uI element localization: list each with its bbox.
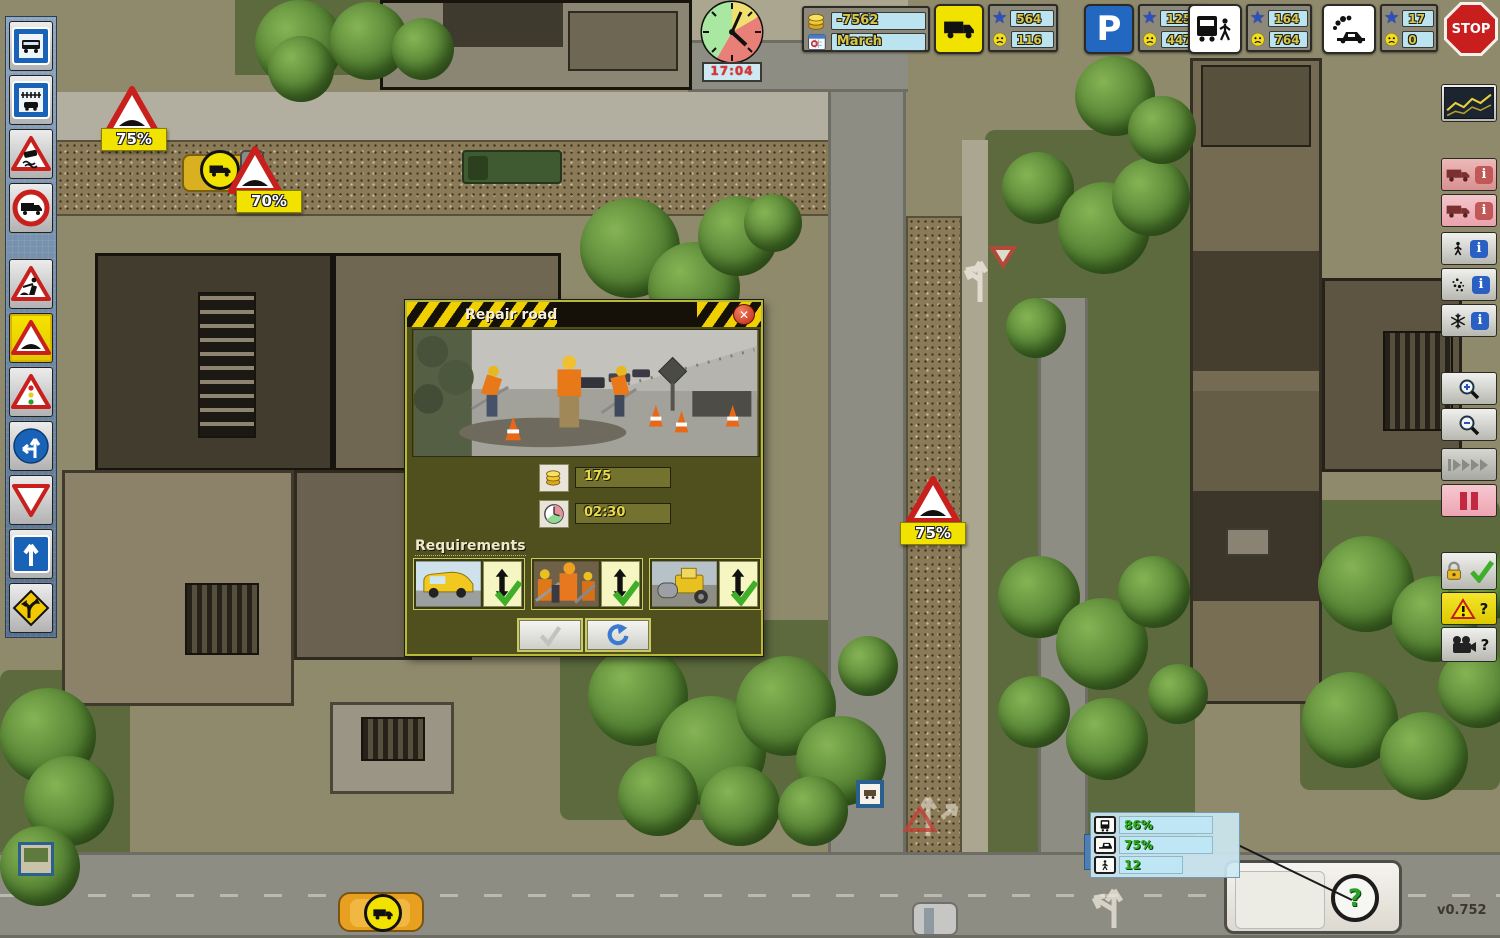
requirement-service-van <box>413 558 525 610</box>
truck-cab <box>468 156 488 180</box>
tree <box>618 756 698 836</box>
rating-row: ★ 164 <box>1250 8 1308 29</box>
rating-row: ★ 564 <box>992 8 1054 29</box>
check-icon <box>729 578 759 606</box>
building-roof <box>1201 65 1311 147</box>
toolbar-road-works-sign[interactable] <box>9 259 53 309</box>
plaza <box>55 92 860 140</box>
road-workers-photo <box>534 561 599 607</box>
stop-status-tooltip: 86% 75% 12 <box>1090 812 1240 878</box>
placed-speed-bump-sign[interactable]: 70% <box>228 146 280 224</box>
building-roof <box>568 11 678 71</box>
toolbar-rail-crossing-sign[interactable] <box>9 75 53 125</box>
toolbar-curve-warning-sign[interactable] <box>9 583 53 633</box>
truck-icon <box>372 906 394 921</box>
version-label: v0.752 <box>1437 903 1487 918</box>
zoom-in-icon <box>1457 377 1481 401</box>
building <box>62 470 294 706</box>
truck-vehicle[interactable] <box>462 150 562 184</box>
fast-forward-icon <box>1447 457 1491 473</box>
warning-help-button[interactable]: ? <box>1441 592 1497 625</box>
calendar-icon <box>806 32 828 52</box>
tree <box>700 766 780 846</box>
tree <box>392 18 454 80</box>
star-icon: ★ <box>1384 10 1399 27</box>
speed-bump-icon <box>11 319 51 357</box>
statistics-graph-button[interactable] <box>1441 84 1497 122</box>
deliveries-stats: ★ 564 116 <box>988 4 1058 52</box>
building-roof <box>1193 601 1319 701</box>
sad-face-icon <box>1250 31 1266 48</box>
repair-cost-value: 175 <box>575 467 671 488</box>
duration-clock-icon <box>539 500 569 528</box>
toolbar-traffic-light-sign[interactable] <box>9 367 53 417</box>
sad-face-icon <box>992 31 1008 48</box>
bus-vehicle[interactable]: ? <box>1224 860 1402 934</box>
undo-arrow-icon <box>605 622 631 648</box>
requirement-road-roller <box>649 558 761 610</box>
bus-icon <box>1094 816 1116 834</box>
reset-button[interactable] <box>587 620 649 650</box>
winter-info-button[interactable]: i <box>1441 304 1497 337</box>
stop-label: STOP <box>1452 22 1491 37</box>
road-marking <box>898 778 968 842</box>
parking-button[interactable]: P <box>1084 4 1134 54</box>
pause-bar <box>1471 492 1478 510</box>
requirement-quantity-stepper[interactable] <box>601 561 640 607</box>
no-trucks-icon <box>12 189 50 227</box>
toolbar-bus-stop-sign[interactable] <box>9 21 53 71</box>
tree <box>1148 664 1208 724</box>
unhappy-value: 764 <box>1269 31 1308 48</box>
slippery-road-icon <box>11 135 51 173</box>
transport-icon <box>1094 836 1116 854</box>
particles-icon <box>1448 276 1468 294</box>
bus-status-badge[interactable]: ? <box>1331 874 1379 922</box>
stat-value: 75% <box>1119 836 1213 854</box>
parking-letter: P <box>1097 12 1122 46</box>
stop-button[interactable]: STOP <box>1444 2 1498 56</box>
tree <box>1066 698 1148 780</box>
service-van-photo <box>416 561 481 607</box>
coins-icon <box>806 11 828 31</box>
building <box>1190 58 1322 704</box>
building-vent <box>185 583 259 655</box>
pause-button[interactable] <box>1441 484 1497 517</box>
tree <box>838 636 898 696</box>
tree <box>1118 556 1190 628</box>
requirement-quantity-stepper[interactable] <box>483 561 522 607</box>
speed-bump-icon <box>228 146 282 194</box>
pedestrian-icon <box>1450 240 1466 258</box>
toolbar-one-way-sign[interactable] <box>9 529 53 579</box>
tooltip-row: 75% <box>1094 836 1236 854</box>
bus-icon <box>863 789 877 799</box>
tree <box>1112 158 1190 236</box>
toolbar-no-trucks-sign[interactable] <box>9 183 53 233</box>
building-roof <box>1193 251 1319 371</box>
building-vent <box>361 717 425 761</box>
zoom-out-button[interactable] <box>1441 408 1497 441</box>
bus-stop-map-sign[interactable] <box>856 780 884 808</box>
road-arrow-marking <box>1078 876 1138 934</box>
tooltip-row: 86% <box>1094 816 1236 834</box>
sign-picture <box>24 848 48 862</box>
zoom-in-button[interactable] <box>1441 372 1497 405</box>
info-icon: i <box>1472 276 1490 294</box>
day-clock[interactable] <box>700 0 764 64</box>
money-panel: -7562 March <box>802 6 930 52</box>
lock-confirm-button[interactable] <box>1441 552 1497 590</box>
tree <box>1380 712 1468 800</box>
info-icon: i <box>1471 312 1489 330</box>
tree <box>1006 298 1066 358</box>
bus-roof <box>1235 871 1325 929</box>
rating-value: 564 <box>1010 10 1054 27</box>
question-icon: ? <box>1481 636 1490 654</box>
star-icon: ★ <box>992 10 1007 27</box>
zoom-out-icon <box>1457 413 1481 437</box>
money-row: -7562 <box>806 10 926 31</box>
question-icon: ? <box>1480 600 1489 618</box>
clock-face <box>700 0 764 64</box>
emissions-button[interactable] <box>1322 4 1376 54</box>
sad-face-icon <box>1142 31 1158 48</box>
tree <box>778 776 848 846</box>
confirm-button[interactable] <box>519 620 581 650</box>
truck-info-button-2[interactable]: i <box>1441 194 1497 227</box>
requirement-road-workers <box>531 558 643 610</box>
repair-road-dialog: Repair road ✕ <box>405 300 763 656</box>
unhappy-value: 116 <box>1011 31 1054 48</box>
query-glyph: ? <box>1348 884 1362 912</box>
check-icon <box>535 623 565 647</box>
tooltip-row: 12 <box>1094 856 1236 874</box>
movie-camera-icon <box>1449 634 1477 656</box>
road-works-icon <box>11 265 51 303</box>
unhappy-value: 0 <box>1402 31 1434 48</box>
placed-speed-bump-sign[interactable]: 75% <box>906 476 958 554</box>
building-windows <box>198 292 256 438</box>
stat-value: 86% <box>1119 816 1213 834</box>
map-sign <box>18 842 54 876</box>
toolbar-left-or-straight-sign[interactable] <box>9 421 53 471</box>
toolbar-speed-bump-sign[interactable] <box>9 313 53 363</box>
info-icon: i <box>1475 166 1493 184</box>
rating-value: 17 <box>1402 10 1434 27</box>
tree <box>744 194 802 252</box>
star-icon: ★ <box>1142 10 1157 27</box>
graph-icon <box>1444 87 1494 119</box>
road-roller-photo <box>652 561 717 607</box>
toolbar-yield-sign[interactable] <box>9 475 53 525</box>
snowflake-icon <box>1449 312 1467 330</box>
vehicle-badge <box>364 894 402 932</box>
building-roof <box>443 3 563 47</box>
unhappy-row: 116 <box>992 29 1054 50</box>
sign-toolbar <box>5 16 57 638</box>
pause-bar <box>1460 492 1467 510</box>
dialog-title: Repair road <box>465 307 557 323</box>
rail-crossing-icon <box>12 81 50 119</box>
tree <box>998 676 1070 748</box>
check-icon <box>1469 559 1495 583</box>
van-vehicle[interactable] <box>338 892 424 932</box>
month-row: March <box>806 31 926 52</box>
placed-speed-bump-sign[interactable]: 75% <box>105 86 157 164</box>
star-icon: ★ <box>1250 10 1265 27</box>
deliveries-button[interactable] <box>934 4 984 54</box>
coins-icon <box>539 464 569 492</box>
check-icon <box>611 578 641 606</box>
sign-speed-label: 70% <box>236 190 302 213</box>
building <box>95 253 333 471</box>
repair-duration-value: 02:30 <box>575 503 671 524</box>
building-roof <box>1193 391 1319 491</box>
game-screen: ? 75% 70% 75% 86% <box>0 0 1500 938</box>
close-icon[interactable]: ✕ <box>733 304 755 325</box>
building <box>330 702 454 794</box>
public-transport-button[interactable] <box>1188 4 1242 54</box>
public-transport-stats: ★ 164 764 <box>1246 4 1312 52</box>
traffic-light-icon <box>11 373 51 411</box>
sad-face-icon <box>1384 31 1399 48</box>
speed-bump-icon <box>906 476 960 524</box>
unhappy-row: 764 <box>1250 29 1308 50</box>
curve-warning-icon <box>11 588 51 628</box>
dialog-titlebar[interactable]: Repair road ✕ <box>407 302 761 327</box>
emissions-stats: ★ 17 0 <box>1380 4 1438 52</box>
rating-value: 164 <box>1268 10 1308 27</box>
clock-time: 17:04 <box>702 62 762 82</box>
unhappy-row: 0 <box>1384 29 1434 50</box>
lock-icon <box>1443 559 1465 583</box>
dumpster <box>1226 528 1270 556</box>
repair-photo <box>412 329 760 457</box>
truck-icon <box>1445 202 1471 219</box>
stat-value: 12 <box>1119 856 1183 874</box>
tree <box>268 36 334 102</box>
sign-speed-label: 75% <box>101 128 167 151</box>
bus-stop-icon <box>12 27 50 65</box>
game-speed-button[interactable] <box>1441 448 1497 481</box>
pedestrian-info-button[interactable]: i <box>1441 232 1497 265</box>
tree <box>1128 96 1196 164</box>
sign-speed-label: 75% <box>900 522 966 545</box>
rating-row: ★ 17 <box>1384 8 1434 29</box>
check-icon <box>493 578 523 606</box>
truck-icon <box>942 18 976 40</box>
pedestrian-icon <box>1094 856 1116 874</box>
yield-icon <box>11 481 51 519</box>
left-or-straight-icon <box>12 427 50 465</box>
truck-icon <box>1445 166 1471 183</box>
car-windshield <box>924 908 934 934</box>
bus-pedestrian-icon <box>1195 14 1235 44</box>
requirements-label: Requirements <box>415 538 526 556</box>
month-value: March <box>831 33 926 51</box>
info-icon: i <box>1475 202 1493 220</box>
toolbar-slippery-road-sign[interactable] <box>9 129 53 179</box>
truck-info-button[interactable]: i <box>1441 158 1497 191</box>
warning-triangle-icon <box>1450 598 1476 620</box>
one-way-icon <box>12 535 50 573</box>
road-arrow-marking <box>958 240 1018 310</box>
speed-bump-icon <box>105 86 159 134</box>
info-icon: i <box>1470 240 1488 258</box>
money-value: -7562 <box>831 12 926 30</box>
car-exhaust-icon <box>1329 14 1369 44</box>
emissions-info-button[interactable]: i <box>1441 268 1497 301</box>
requirement-quantity-stepper[interactable] <box>719 561 758 607</box>
car-vehicle[interactable] <box>912 902 958 936</box>
camera-help-button[interactable]: ? <box>1441 627 1497 662</box>
